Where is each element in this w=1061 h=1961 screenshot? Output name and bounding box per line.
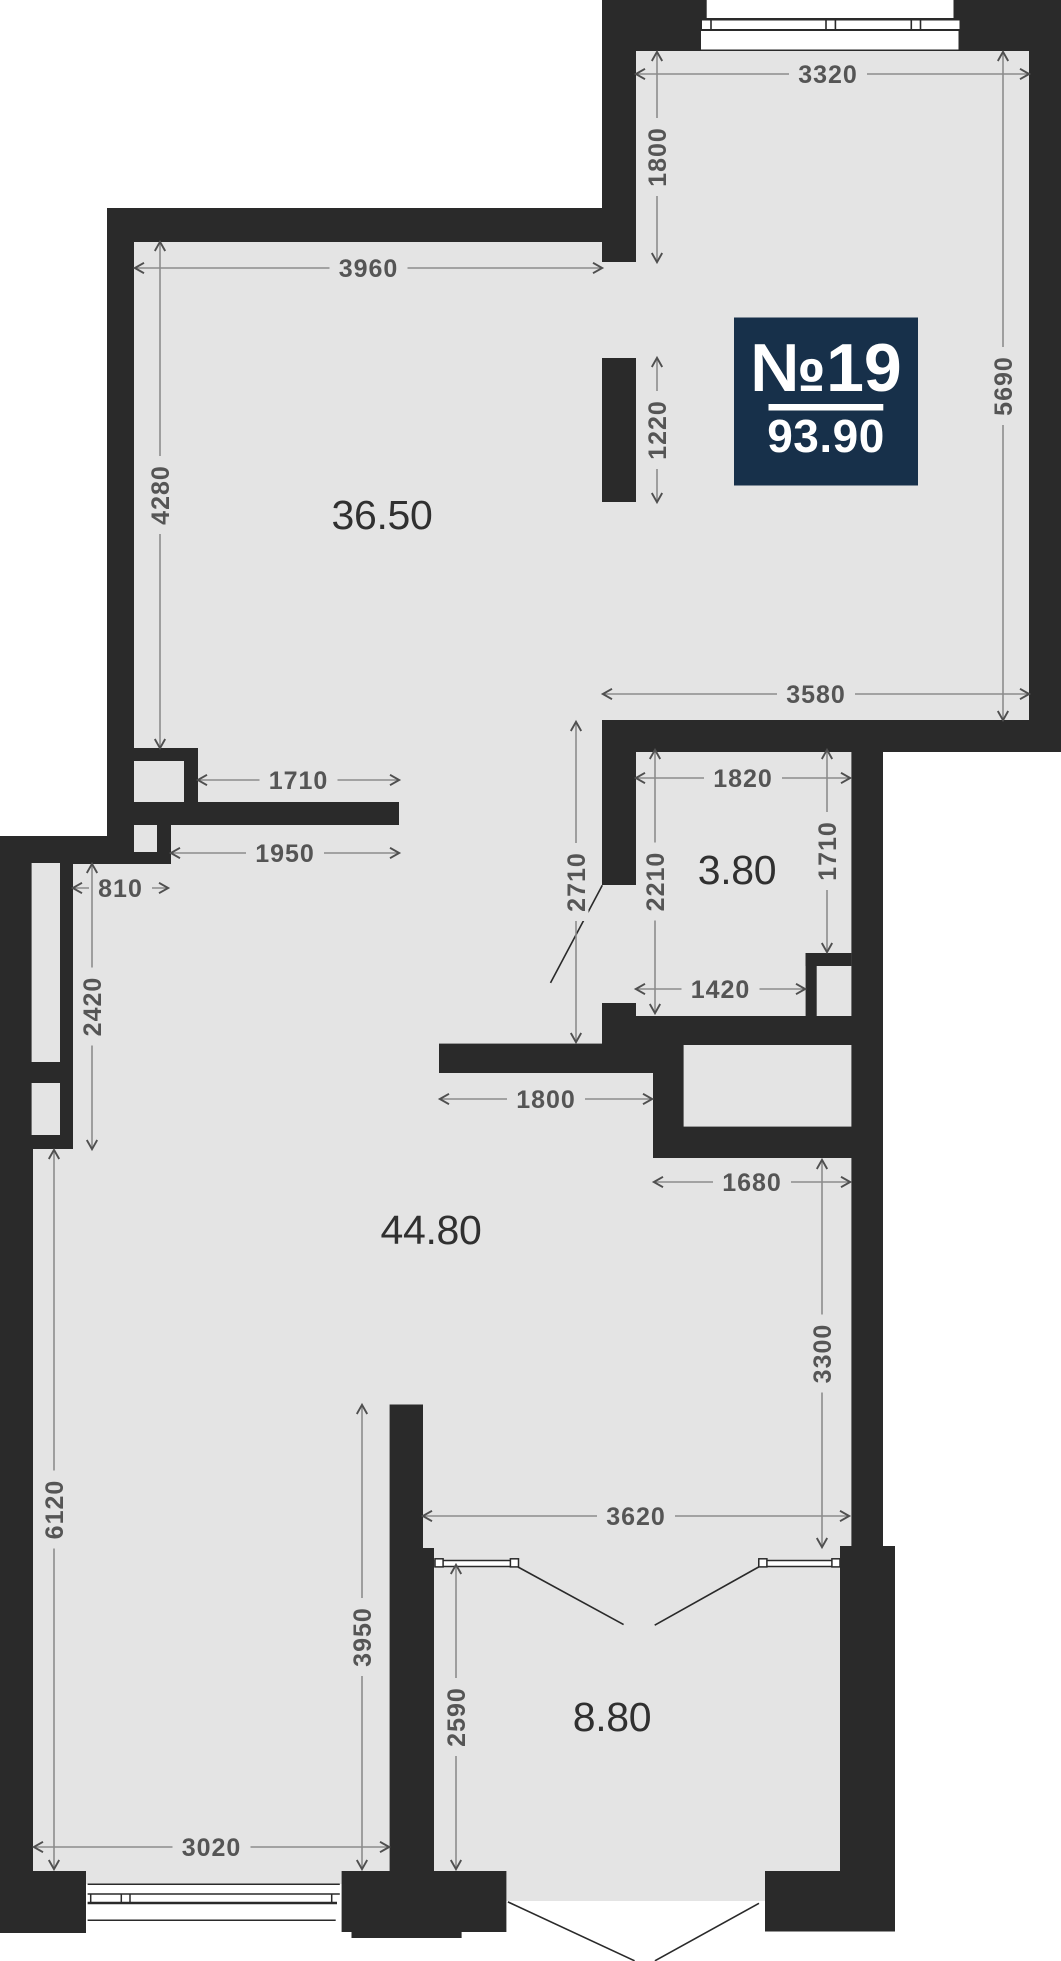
svg-text:3.80: 3.80 xyxy=(698,847,777,893)
svg-text:3960: 3960 xyxy=(339,255,399,283)
svg-text:1710: 1710 xyxy=(814,821,842,881)
svg-text:1800: 1800 xyxy=(516,1086,576,1114)
svg-text:1220: 1220 xyxy=(644,400,672,460)
svg-text:3580: 3580 xyxy=(786,681,846,709)
svg-text:№19: №19 xyxy=(750,330,901,406)
svg-text:4280: 4280 xyxy=(147,465,175,525)
svg-text:1820: 1820 xyxy=(713,765,773,793)
svg-text:3320: 3320 xyxy=(798,61,858,89)
svg-text:1800: 1800 xyxy=(644,127,672,187)
svg-text:3620: 3620 xyxy=(606,1503,666,1531)
svg-text:2710: 2710 xyxy=(563,852,591,912)
svg-text:6120: 6120 xyxy=(41,1480,69,1540)
svg-text:36.50: 36.50 xyxy=(331,492,432,538)
svg-text:93.90: 93.90 xyxy=(767,410,885,462)
svg-text:3020: 3020 xyxy=(182,1834,242,1862)
svg-text:2210: 2210 xyxy=(642,852,670,912)
svg-text:1710: 1710 xyxy=(269,767,329,795)
svg-text:44.80: 44.80 xyxy=(380,1207,481,1253)
svg-text:8.80: 8.80 xyxy=(573,1694,652,1740)
svg-text:3300: 3300 xyxy=(809,1324,837,1384)
svg-text:1420: 1420 xyxy=(691,976,751,1004)
svg-text:5690: 5690 xyxy=(990,356,1018,416)
svg-text:2420: 2420 xyxy=(79,977,107,1037)
svg-text:1680: 1680 xyxy=(722,1169,782,1197)
svg-text:1950: 1950 xyxy=(255,840,315,868)
svg-text:3950: 3950 xyxy=(349,1607,377,1667)
svg-text:2590: 2590 xyxy=(443,1687,471,1747)
svg-text:810: 810 xyxy=(98,875,143,903)
